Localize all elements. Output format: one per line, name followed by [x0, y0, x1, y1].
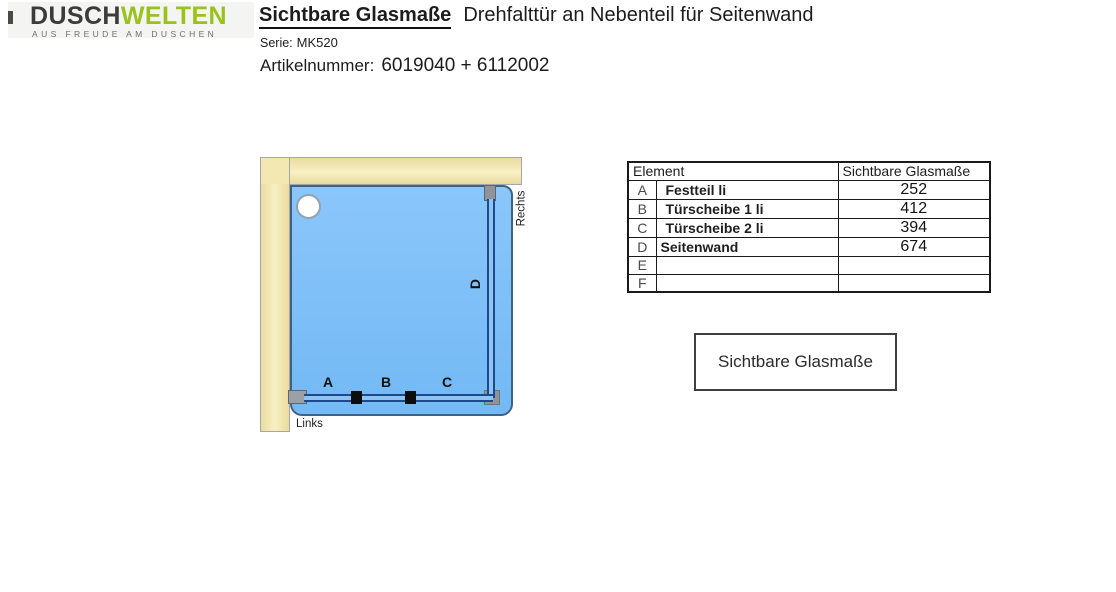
- hinge-icon: [351, 391, 362, 404]
- row-name: [656, 274, 838, 292]
- serie-value: MK520: [297, 35, 338, 50]
- row-value: [838, 256, 990, 274]
- row-key: B: [628, 199, 656, 218]
- wall-corner: [261, 158, 289, 184]
- row-name: [656, 256, 838, 274]
- page-title-line: Sichtbare GlasmaßeDrehfalttür an Nebente…: [259, 4, 814, 27]
- serie-line: Serie:MK520: [260, 35, 338, 50]
- brand-logo: DUSCHWELTEN AUS FREUDE AM DUSCHEN: [8, 2, 254, 38]
- table-header-row: Element Sichtbare Glasmaße: [628, 162, 990, 180]
- row-name: Türscheibe 2 li: [656, 218, 838, 237]
- row-key: E: [628, 256, 656, 274]
- table-row: F: [628, 274, 990, 292]
- table-header-element: Element: [628, 162, 838, 180]
- legend-box: Sichtbare Glasmaße: [694, 333, 897, 391]
- hinge-icon: [405, 391, 416, 404]
- row-value: 252: [838, 180, 990, 199]
- segment-label-d: D: [467, 275, 483, 293]
- artikelnummer-label: Artikelnummer:: [260, 56, 374, 75]
- wall-left: [260, 157, 290, 432]
- glass-dimensions-table: Element Sichtbare Glasmaße A Festteil li…: [627, 161, 991, 293]
- segment-label-a: A: [319, 374, 337, 390]
- wall-top: [260, 157, 522, 185]
- table-row: B Türscheibe 1 li 412: [628, 199, 990, 218]
- row-name: Seitenwand: [656, 237, 838, 256]
- artikelnummer-line: Artikelnummer:6019040 + 6112002: [260, 55, 550, 77]
- row-name: Festteil li: [656, 180, 838, 199]
- row-value: 412: [838, 199, 990, 218]
- drain-circle: [296, 194, 321, 219]
- brand-name-part2: WELTEN: [121, 2, 227, 30]
- row-key: C: [628, 218, 656, 237]
- row-value: [838, 274, 990, 292]
- table-header-value: Sichtbare Glasmaße: [838, 162, 990, 180]
- artikelnummer-value: 6019040 + 6112002: [381, 55, 549, 76]
- row-key: D: [628, 237, 656, 256]
- brand-tagline: AUS FREUDE AM DUSCHEN: [32, 29, 217, 39]
- page-title: Sichtbare Glasmaße: [259, 4, 451, 29]
- row-value: 674: [838, 237, 990, 256]
- legend-box-label: Sichtbare Glasmaße: [718, 352, 873, 372]
- side-label-rechts: Rechts: [516, 186, 529, 232]
- logo-mark-icon: [8, 11, 13, 24]
- table-row: A Festteil li 252: [628, 180, 990, 199]
- page-subtitle: Drehfalttür an Nebenteil für Seitenwand: [463, 4, 813, 26]
- brand-name-part1: DUSCH: [30, 2, 121, 30]
- row-name: Türscheibe 1 li: [656, 199, 838, 218]
- segment-label-c: C: [438, 374, 456, 390]
- serie-label: Serie:: [260, 36, 293, 50]
- table-row: C Türscheibe 2 li 394: [628, 218, 990, 237]
- table-row: D Seitenwand 674: [628, 237, 990, 256]
- glass-panel-d-seitenwand: [487, 199, 495, 398]
- shower-top-view-diagram: A B C D Links Rechts: [260, 157, 526, 437]
- glass-front-abc: [304, 394, 493, 402]
- row-key: A: [628, 180, 656, 199]
- table-row: E: [628, 256, 990, 274]
- side-label-links: Links: [296, 418, 323, 430]
- row-value: 394: [838, 218, 990, 237]
- row-key: F: [628, 274, 656, 292]
- brand-name: DUSCHWELTEN: [30, 2, 227, 31]
- segment-label-b: B: [377, 374, 395, 390]
